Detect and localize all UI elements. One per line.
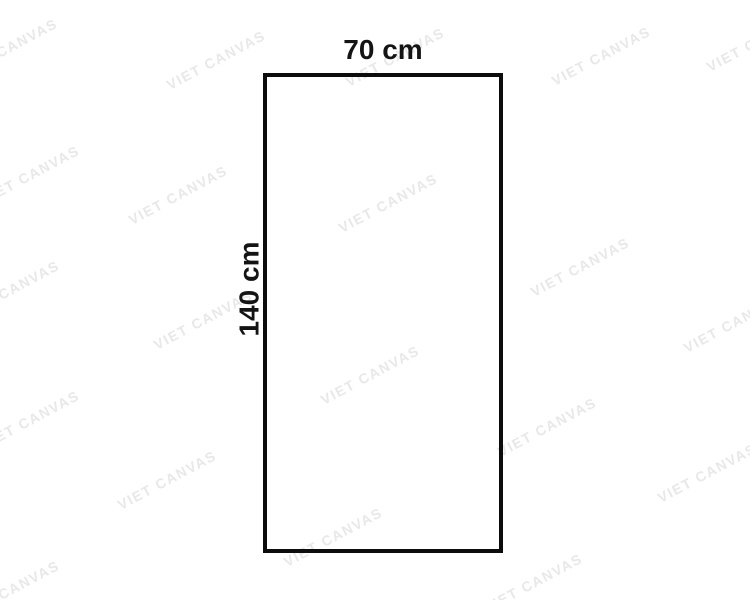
watermark-text: VIET CANVAS (0, 142, 82, 208)
watermark-text: VIET CANVAS (495, 394, 599, 460)
height-dimension-label: 140 cm (235, 242, 266, 337)
watermark-text: VIET CANVAS (481, 550, 585, 600)
watermark-text: VIET CANVAS (126, 162, 230, 228)
watermark-text: VIET CANVAS (164, 27, 268, 93)
watermark-text: VIET CANVAS (549, 23, 653, 89)
watermark-text: VIET CANVAS (0, 387, 82, 453)
watermark-text: VIET CANVAS (115, 447, 219, 513)
watermark-text: VIET CANVAS (655, 440, 750, 506)
watermark-text: VIET CANVAS (0, 557, 62, 600)
rectangle-outline (263, 73, 503, 553)
width-dimension-label: 70 cm (263, 35, 503, 66)
watermark-text: VIET CANVAS (528, 234, 632, 300)
dimension-diagram: VIET CANVASVIET CANVASVIET CANVASVIET CA… (0, 0, 750, 600)
watermark-text: VIET CANVAS (0, 15, 60, 81)
watermark-text: VIET CANVAS (0, 257, 62, 323)
watermark-text: VIET CANVAS (681, 290, 750, 356)
watermark-text: VIET CANVAS (704, 9, 750, 75)
